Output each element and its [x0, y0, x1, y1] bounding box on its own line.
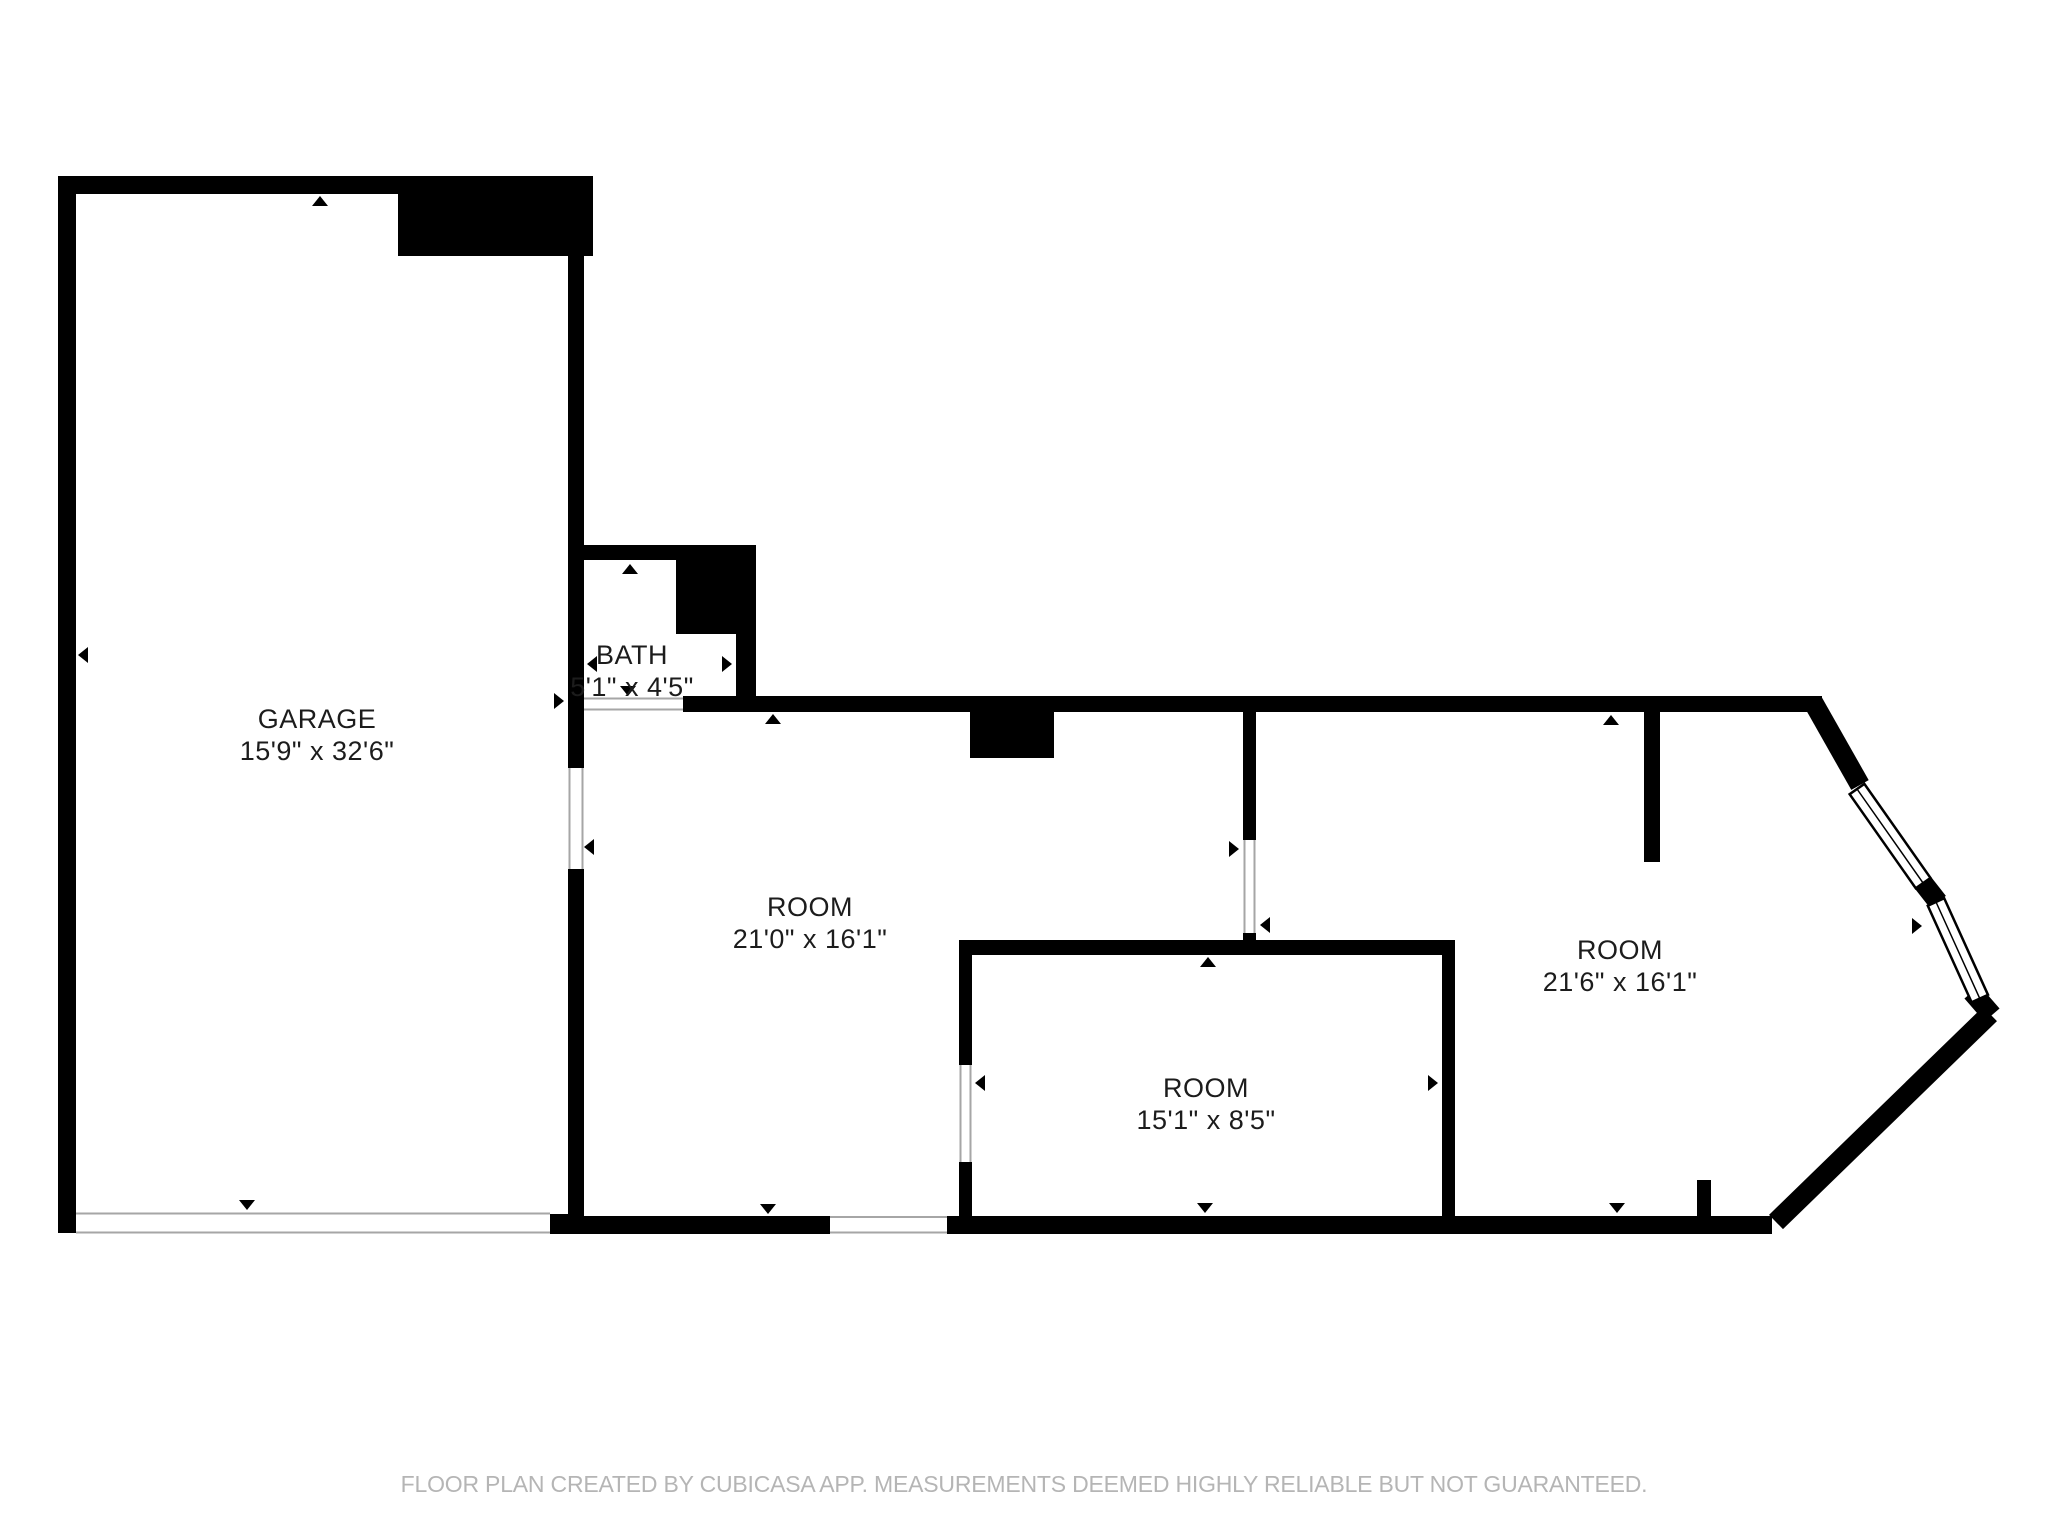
footer-disclaimer: FLOOR PLAN CREATED BY CUBICASA APP. MEAS…	[0, 1471, 2048, 1498]
inner-room-right-wall	[1442, 955, 1455, 1216]
measure-arrow-right-icon	[1912, 918, 1922, 934]
inner-room-left-wall-lower	[959, 1162, 972, 1216]
room-label-inner-room: ROOM 15'1" x 8'5"	[1136, 1072, 1275, 1136]
bay-wall-lower-diagonal	[1776, 1014, 1990, 1222]
measure-arrow-up-icon	[1200, 957, 1216, 967]
measure-arrow-right-icon	[554, 693, 564, 709]
bottom-walls	[550, 1216, 1772, 1234]
bay-window-upper	[1850, 784, 1931, 888]
right-room-top-stub-wall	[1644, 712, 1660, 862]
measure-arrow-up-icon	[312, 196, 328, 206]
measure-arrow-down-icon	[760, 1204, 776, 1214]
center-room-measure-arrows	[584, 714, 1239, 1214]
measure-arrow-down-icon	[1197, 1203, 1213, 1213]
measure-arrow-up-icon	[1603, 715, 1619, 725]
measure-arrow-right-icon	[1229, 841, 1239, 857]
bay-window-lower	[1928, 898, 1988, 1002]
room-name: GARAGE	[240, 703, 395, 735]
bottom-wall-right	[947, 1216, 1772, 1234]
garage-top-wall	[58, 176, 593, 194]
main-top-wall	[683, 696, 1822, 712]
garage-left-wall	[58, 176, 76, 1233]
room-label-bath: BATH 5'1" x 4'5"	[570, 639, 694, 703]
inner-room-left-wall-upper	[959, 955, 972, 1065]
garage-right-wall-lower	[568, 869, 584, 1216]
room-name: BATH	[570, 639, 694, 671]
measure-arrow-left-icon	[1260, 917, 1270, 933]
garage-door-opening	[76, 1214, 550, 1233]
divider-wall	[1243, 712, 1256, 840]
inner-room-top-wall	[959, 940, 1455, 955]
room-dimensions: 5'1" x 4'5"	[570, 671, 694, 703]
floor-plan-drawing	[0, 0, 2048, 1536]
right-room-bottom-stub-wall	[1697, 1180, 1711, 1216]
measure-arrow-up-icon	[622, 564, 638, 574]
garage-to-room-door-opening	[570, 768, 583, 869]
measure-arrow-right-icon	[722, 656, 732, 672]
room-label-right-room: ROOM 21'6" x 16'1"	[1543, 934, 1698, 998]
room-label-garage: GARAGE 15'9" x 32'6"	[240, 703, 395, 767]
measure-arrow-left-icon	[584, 839, 594, 855]
bay-wall-upper-diagonal	[1813, 702, 1860, 785]
room-dimensions: 21'0" x 16'1"	[733, 923, 888, 955]
measure-arrow-right-icon	[1428, 1075, 1438, 1091]
measure-arrow-down-icon	[1609, 1203, 1625, 1213]
room-dimensions: 15'9" x 32'6"	[240, 735, 395, 767]
bottom-door-opening	[830, 1217, 947, 1233]
room-name: ROOM	[1543, 934, 1698, 966]
room-name: ROOM	[733, 891, 888, 923]
bath-corner-block	[676, 560, 756, 634]
room-name: ROOM	[1136, 1072, 1275, 1104]
floor-plan: GARAGE 15'9" x 32'6" BATH 5'1" x 4'5" RO…	[0, 0, 2048, 1536]
bottom-wall-left	[550, 1216, 830, 1234]
room-dimensions: 21'6" x 16'1"	[1543, 966, 1698, 998]
garage-top-right-notch	[398, 194, 593, 256]
measure-arrow-left-icon	[78, 647, 88, 663]
chimney-block	[970, 712, 1054, 758]
inner-room-door-opening	[961, 1065, 971, 1162]
room-label-center-room: ROOM 21'0" x 16'1"	[733, 891, 888, 955]
room-dimensions: 15'1" x 8'5"	[1136, 1104, 1275, 1136]
measure-arrow-down-icon	[239, 1200, 255, 1210]
bath-top-wall	[568, 545, 756, 560]
measure-arrow-up-icon	[765, 714, 781, 724]
measure-arrow-left-icon	[975, 1075, 985, 1091]
divider-door-opening	[1245, 840, 1255, 933]
